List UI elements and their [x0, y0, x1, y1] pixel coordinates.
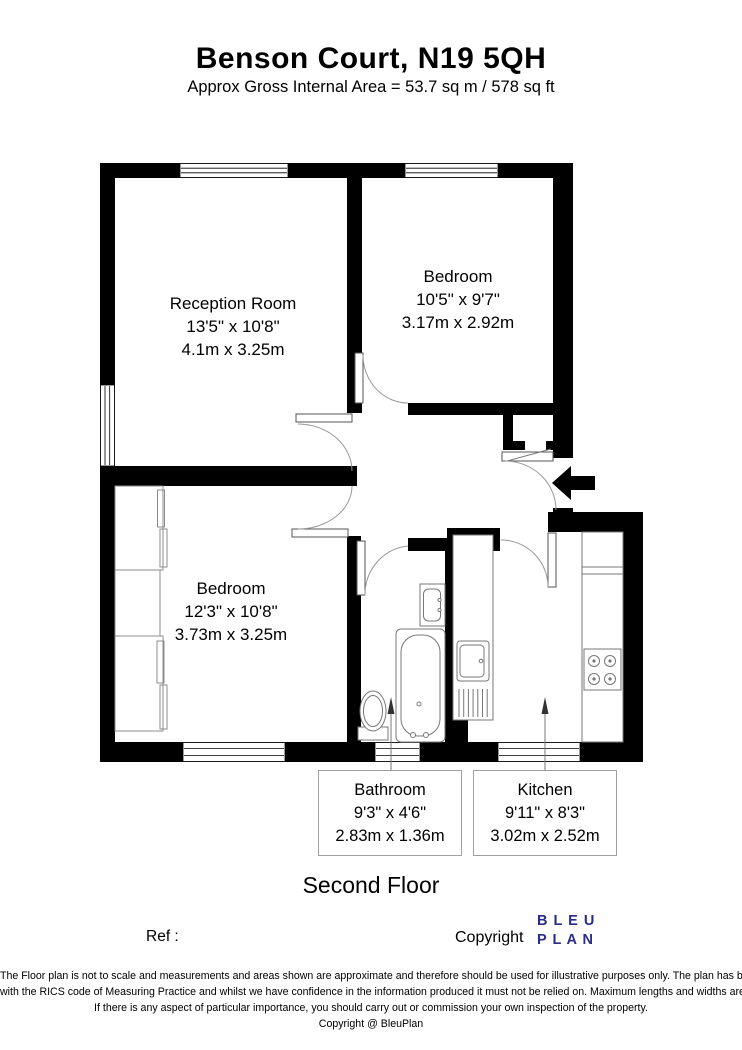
room-size-imperial: 9'3" x 4'6"	[319, 802, 461, 825]
reception-room-label: Reception Room 13'5" x 10'8" 4.1m x 3.25…	[170, 292, 297, 361]
door-bedroom2	[292, 486, 352, 537]
room-size-metric: 3.73m x 3.25m	[175, 623, 287, 646]
disclaimer-line: If there is any aspect of particular imp…	[0, 1000, 742, 1016]
room-size-imperial: 12'3" x 10'8"	[175, 600, 287, 623]
window-bedroom2-bottom	[183, 743, 285, 762]
bedroom2-label: Bedroom 12'3" x 10'8" 3.73m x 3.25m	[175, 577, 287, 646]
ref-label: Ref :	[146, 928, 179, 946]
basin-icon	[420, 584, 445, 626]
kitchen-counter-right	[582, 532, 623, 742]
bathroom-fixtures	[358, 584, 445, 742]
room-size-metric: 2.83m x 1.36m	[319, 825, 461, 848]
kitchen-fixtures	[453, 532, 623, 742]
bedroom1-label: Bedroom 10'5" x 9'7" 3.17m x 2.92m	[402, 265, 514, 334]
bleuplan-logo: B L E U P L A N	[537, 912, 595, 950]
walls	[100, 163, 643, 762]
windows	[101, 164, 581, 762]
door-entrance	[502, 449, 556, 510]
window-reception-left	[101, 385, 115, 466]
door-bedroom1	[355, 353, 408, 403]
room-size-metric: 3.02m x 2.52m	[474, 825, 616, 848]
bedroom2-wardrobes	[115, 486, 167, 731]
logo-line-2: P L A N	[537, 931, 595, 950]
disclaimer-line: Copyright @ BleuPlan	[0, 1016, 742, 1032]
room-size-imperial: 9'11" x 8'3"	[474, 802, 616, 825]
floorplan-page: { "header": { "title": "Benson Court, N1…	[0, 0, 742, 1050]
chimney-breast	[115, 570, 160, 636]
room-name: Reception Room	[170, 292, 297, 315]
toilet-icon	[358, 691, 388, 740]
entry-arrow-icon	[552, 466, 595, 500]
disclaimer-text: The Floor plan is not to scale and measu…	[0, 968, 742, 1032]
window-kitchen-bottom	[498, 743, 580, 762]
bathroom-label-box: Bathroom 9'3" x 4'6" 2.83m x 1.36m	[318, 770, 462, 856]
room-size-metric: 4.1m x 3.25m	[170, 338, 297, 361]
room-size-imperial: 10'5" x 9'7"	[402, 288, 514, 311]
room-size-metric: 3.17m x 2.92m	[402, 311, 514, 334]
room-name: Bathroom	[319, 779, 461, 802]
disclaimer-line: with the RICS code of Measuring Practice…	[0, 984, 742, 1000]
room-name: Kitchen	[474, 779, 616, 802]
door-bathroom	[357, 541, 408, 595]
bathtub-icon	[396, 629, 445, 742]
hob-icon	[584, 649, 621, 690]
window-bedroom1-top	[405, 164, 498, 178]
window-bathroom-bottom	[375, 743, 420, 762]
kitchen-label-box: Kitchen 9'11" x 8'3" 3.02m x 2.52m	[473, 770, 617, 856]
door-reception	[296, 414, 352, 471]
room-name: Bedroom	[402, 265, 514, 288]
disclaimer-line: The Floor plan is not to scale and measu…	[0, 968, 742, 984]
window-reception-top	[180, 164, 288, 178]
logo-line-1: B L E U	[537, 912, 595, 931]
copyright-label: Copyright	[455, 929, 523, 947]
room-name: Bedroom	[175, 577, 287, 600]
door-kitchen	[501, 533, 556, 587]
floor-label: Second Floor	[0, 872, 742, 899]
room-size-imperial: 13'5" x 10'8"	[170, 315, 297, 338]
